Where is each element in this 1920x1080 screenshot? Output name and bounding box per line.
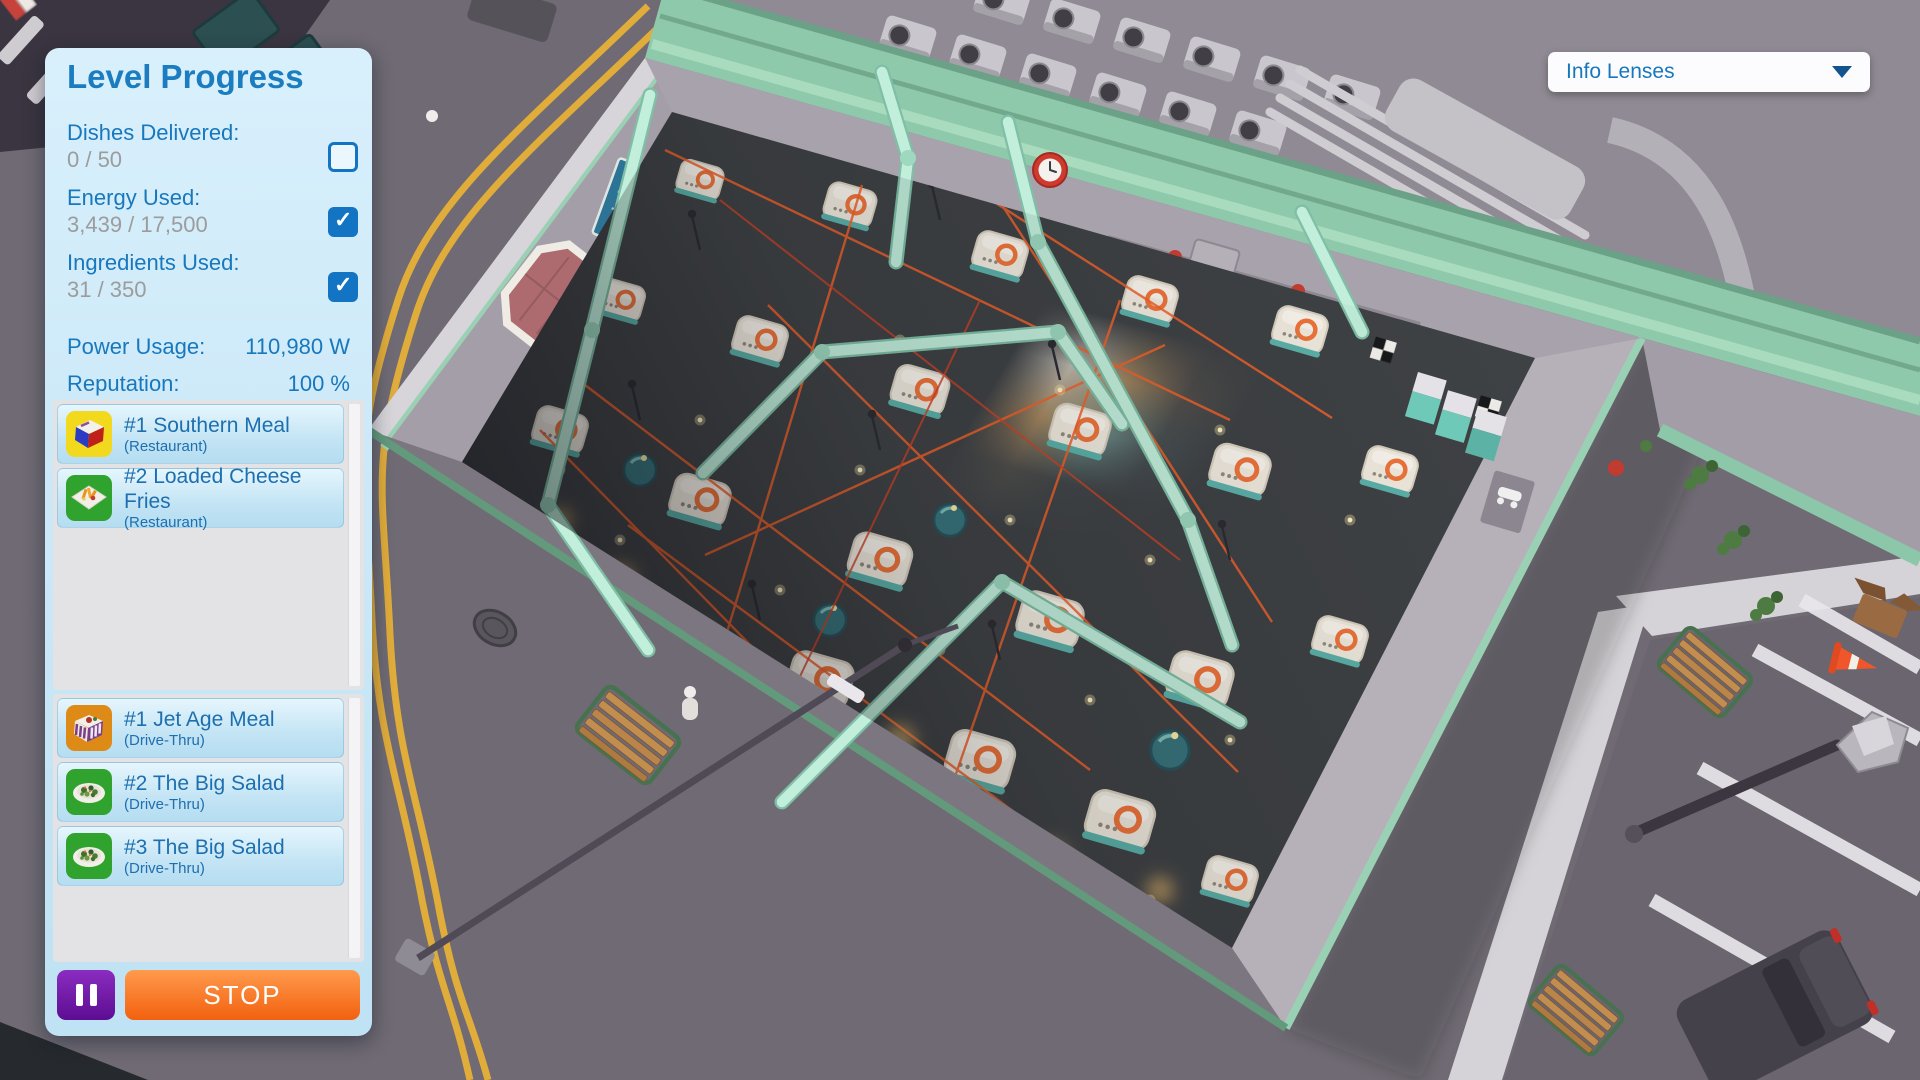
stop-button[interactable]: STOP (125, 970, 360, 1020)
stat-checkbox[interactable] (328, 142, 358, 172)
combo-box-icon (66, 411, 112, 457)
stat-row: Ingredients Used: 31 / 350 (67, 250, 358, 304)
order-name: #2 Loaded Cheese Fries (124, 464, 335, 514)
metric-label: Reputation: (67, 371, 180, 397)
stat-texts: Energy Used: 3,439 / 17,500 (67, 185, 208, 239)
order-name: #1 Southern Meal (124, 413, 290, 438)
order-item[interactable]: #2 The Big Salad (Drive-Thru) (57, 762, 344, 822)
pause-button[interactable] (57, 970, 115, 1020)
restaurant-order-list: #1 Southern Meal (Restaurant) (53, 400, 364, 690)
salad-plate-icon (66, 833, 112, 879)
drive-thru-order-list: #1 Jet Age Meal (Drive-Thru) (53, 694, 364, 962)
stat-value: 0 / 50 (67, 146, 239, 174)
order-texts: #3 The Big Salad (Drive-Thru) (124, 835, 285, 878)
order-venue: (Drive-Thru) (124, 860, 285, 878)
dish-icon (66, 475, 112, 521)
game-screen: Level Progress Dishes Delivered: 0 / 50 … (0, 0, 1920, 1080)
metric-row: Reputation: 100 % (67, 371, 350, 397)
dish-icon (66, 833, 112, 879)
stat-label: Dishes Delivered: (67, 120, 239, 146)
stat-label: Ingredients Used: (67, 250, 239, 276)
order-venue: (Drive-Thru) (124, 796, 285, 814)
pause-icon (76, 984, 83, 1006)
wall-clock (1033, 153, 1067, 187)
stat-texts: Dishes Delivered: 0 / 50 (67, 120, 239, 174)
order-texts: #1 Jet Age Meal (Drive-Thru) (124, 707, 275, 750)
chevron-down-icon (1832, 66, 1852, 78)
dish-icon (66, 411, 112, 457)
order-venue: (Restaurant) (124, 438, 290, 456)
jet-box-icon (66, 705, 112, 751)
stat-row: Dishes Delivered: 0 / 50 (67, 120, 358, 174)
scrollbar[interactable] (348, 404, 360, 686)
order-item[interactable]: #3 The Big Salad (Drive-Thru) (57, 826, 344, 886)
panel-title: Level Progress (67, 58, 304, 96)
info-lenses-label: Info Lenses (1566, 60, 1675, 84)
order-item[interactable]: #1 Southern Meal (Restaurant) (57, 404, 344, 464)
stat-value: 3,439 / 17,500 (67, 211, 208, 239)
order-texts: #1 Southern Meal (Restaurant) (124, 413, 290, 456)
level-progress-panel: Level Progress Dishes Delivered: 0 / 50 … (45, 48, 372, 1036)
control-buttons: STOP (57, 970, 360, 1020)
stat-label: Energy Used: (67, 185, 208, 211)
stat-checkbox[interactable] (328, 272, 358, 302)
metric-row: Power Usage: 110,980 W (67, 334, 350, 360)
order-item[interactable]: #2 Loaded Cheese Fries (Restaurant) (57, 468, 344, 528)
dish-icon (66, 769, 112, 815)
metric-value: 110,980 W (245, 334, 350, 360)
metrics: Power Usage: 110,980 W Reputation: 100 % (67, 334, 350, 408)
info-lenses-dropdown[interactable]: Info Lenses (1548, 52, 1870, 92)
order-texts: #2 Loaded Cheese Fries (Restaurant) (124, 464, 335, 532)
stat-row: Energy Used: 3,439 / 17,500 (67, 185, 358, 239)
order-name: #3 The Big Salad (124, 835, 285, 860)
pause-icon (90, 984, 97, 1006)
order-venue: (Drive-Thru) (124, 732, 275, 750)
goal-stats: Dishes Delivered: 0 / 50 Energy Used: 3,… (67, 120, 358, 315)
stat-value: 31 / 350 (67, 276, 239, 304)
order-name: #2 The Big Salad (124, 771, 285, 796)
salad-plate-icon (66, 769, 112, 815)
dish-icon (66, 705, 112, 751)
metric-label: Power Usage: (67, 334, 205, 360)
metric-value: 100 % (288, 371, 350, 397)
stat-checkbox[interactable] (328, 207, 358, 237)
pedestrian (682, 686, 698, 720)
order-name: #1 Jet Age Meal (124, 707, 275, 732)
scrollbar[interactable] (348, 698, 360, 958)
order-texts: #2 The Big Salad (Drive-Thru) (124, 771, 285, 814)
stat-texts: Ingredients Used: 31 / 350 (67, 250, 239, 304)
fries-plate-icon (66, 475, 112, 521)
order-venue: (Restaurant) (124, 514, 335, 532)
order-item[interactable]: #1 Jet Age Meal (Drive-Thru) (57, 698, 344, 758)
